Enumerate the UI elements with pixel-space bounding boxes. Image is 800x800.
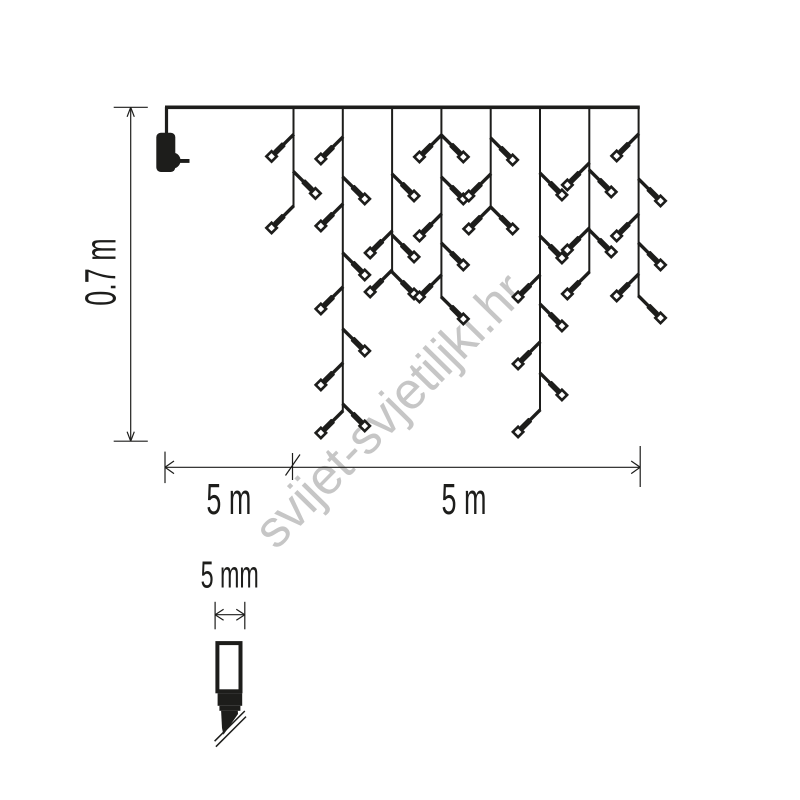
svg-text:svijet-svjetiljki.hr: svijet-svjetiljki.hr bbox=[243, 262, 537, 559]
svg-text:5 m: 5 m bbox=[442, 474, 487, 523]
svg-text:0.7 m: 0.7 m bbox=[76, 238, 125, 305]
svg-text:5 m: 5 m bbox=[206, 474, 251, 523]
svg-text:5 mm: 5 mm bbox=[201, 554, 259, 596]
